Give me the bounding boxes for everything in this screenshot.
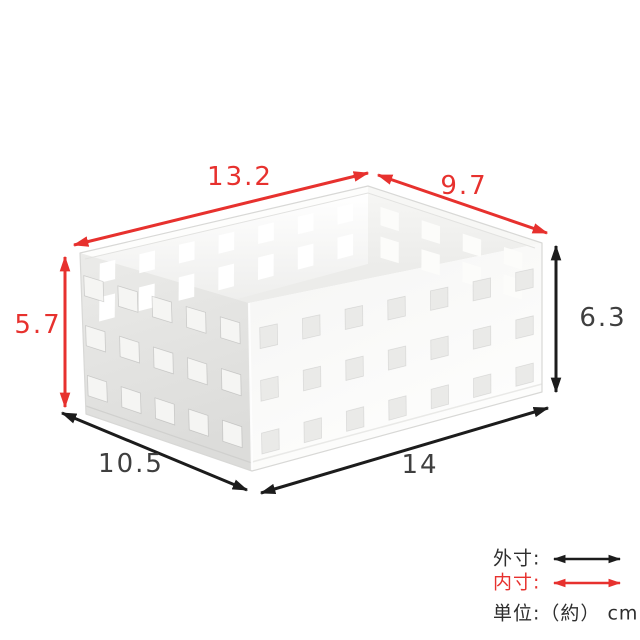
dim-outer-height-label: 6.3 — [579, 305, 626, 331]
perforation-hole — [473, 278, 491, 301]
perforation-hole — [139, 251, 155, 274]
perforation-hole — [262, 429, 280, 454]
dim-inner-height-label: 5.7 — [14, 312, 61, 338]
perforation-hole — [346, 356, 364, 380]
perforation-hole — [388, 346, 406, 370]
perforation-hole — [345, 306, 363, 330]
dim-outer-length-label: 14 — [401, 452, 438, 478]
legend-arrows — [554, 559, 620, 583]
perforation-hole — [346, 407, 364, 432]
perforation-hole — [179, 274, 195, 301]
perforation-hole — [430, 287, 448, 310]
product-dimension-diagram: 13.2 9.7 5.7 6.3 10.5 14 外寸: 内寸: 単位:（約） … — [0, 0, 640, 640]
storage-basket-illustration — [80, 186, 542, 471]
perforation-hole — [219, 232, 235, 254]
dim-inner-length-label: 13.2 — [207, 164, 273, 190]
perforation-hole — [303, 366, 321, 391]
perforation-hole — [388, 296, 406, 320]
perforation-hole — [260, 324, 278, 349]
perforation-hole — [389, 396, 407, 420]
perforation-hole — [218, 264, 234, 291]
dim-outer-depth-label: 10.5 — [98, 451, 164, 477]
perforation-hole — [100, 260, 116, 283]
perforation-hole — [431, 336, 449, 360]
perforation-hole — [516, 269, 534, 292]
perforation-hole — [338, 234, 354, 260]
perforation-hole — [258, 254, 274, 280]
dim-inner-depth-label: 9.7 — [440, 173, 487, 199]
diagram-canvas — [0, 0, 640, 640]
legend-unit-label: 単位:（約） cm — [493, 605, 638, 624]
legend-outer-label: 外寸: — [493, 550, 540, 569]
perforation-hole — [431, 385, 449, 409]
perforation-hole — [473, 326, 491, 349]
legend-inner-label: 内寸: — [493, 574, 540, 593]
perforation-hole — [516, 363, 534, 386]
perforation-hole — [179, 241, 195, 263]
perforation-hole — [304, 418, 322, 443]
perforation-hole — [298, 244, 314, 270]
perforation-hole — [516, 316, 534, 339]
perforation-hole — [261, 376, 279, 401]
perforation-hole — [302, 315, 320, 339]
